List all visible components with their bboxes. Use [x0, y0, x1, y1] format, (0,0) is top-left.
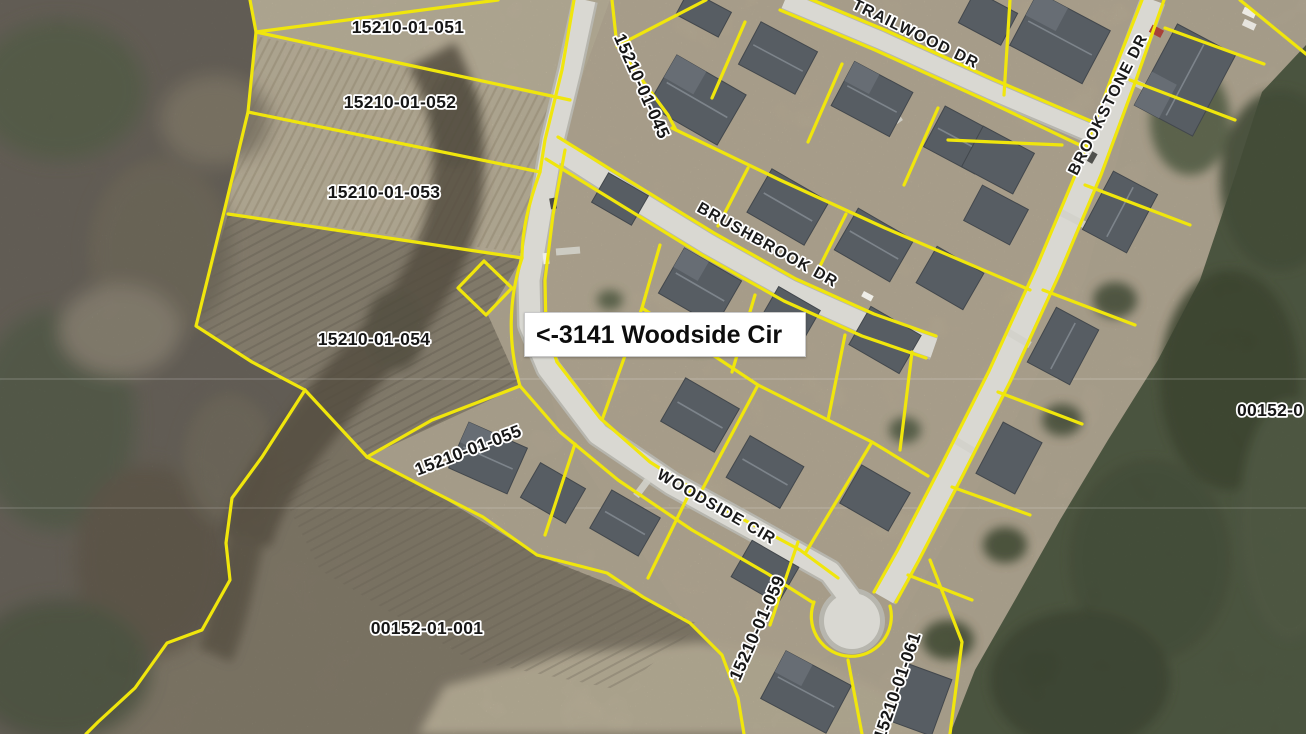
map-canvas[interactable]: 15210-01-051 15210-01-052 15210-01-053 1… [0, 0, 1306, 734]
parcel-map-viewport: 15210-01-051 15210-01-052 15210-01-053 1… [0, 0, 1306, 734]
parcel-label-054[interactable]: 15210-01-054 [318, 329, 431, 349]
parcel-label-051[interactable]: 15210-01-051 [352, 17, 465, 37]
address-callout[interactable]: <-3141 Woodside Cir [524, 312, 806, 357]
parcel-label-00152-01-001[interactable]: 00152-01-001 [371, 618, 484, 638]
parcel-label-00152-edge[interactable]: 00152-0 [1237, 400, 1303, 420]
parcel-label-053[interactable]: 15210-01-053 [328, 182, 441, 202]
parcel-label-052[interactable]: 15210-01-052 [344, 92, 457, 112]
